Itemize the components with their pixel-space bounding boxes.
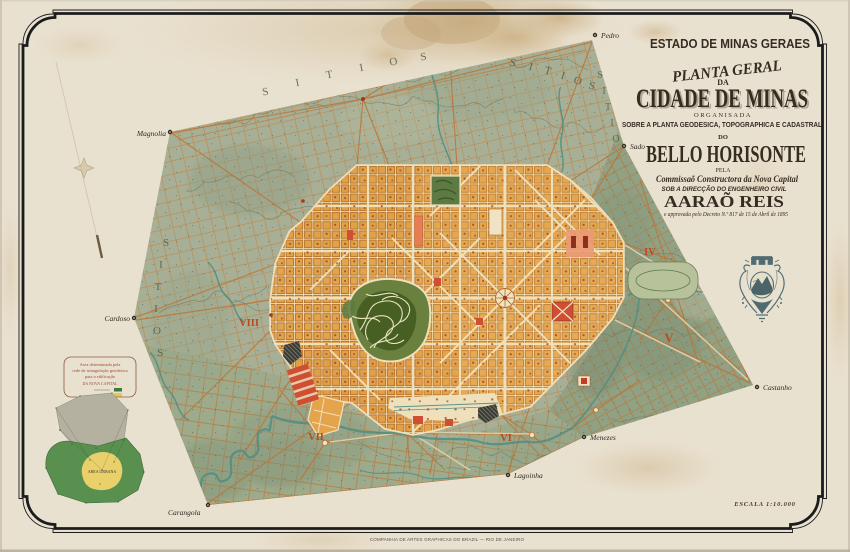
svg-text:VI: VI [500, 433, 512, 444]
svg-text:IV: IV [644, 247, 656, 258]
svg-text:SOBRE A PLANTA GEODESICA, TOPO: SOBRE A PLANTA GEODESICA, TOPOGRAPHICA E… [622, 122, 823, 129]
svg-text:S: S [163, 237, 169, 249]
svg-text:Magnolia: Magnolia [136, 129, 166, 138]
svg-text:Carangola: Carangola [168, 508, 201, 517]
svg-text:rede de triangulação geodesica: rede de triangulação geodesica [72, 368, 127, 373]
svg-text:S: S [597, 70, 603, 81]
svg-text:T: T [605, 102, 611, 113]
svg-text:Commissaõ Constructora da Nova: Commissaõ Constructora da Nova Capital [656, 175, 798, 185]
svg-text:Pedro: Pedro [600, 31, 619, 40]
svg-text:para a edificação: para a edificação [85, 374, 116, 379]
svg-text:ESCALA 1:10.000: ESCALA 1:10.000 [733, 501, 795, 508]
svg-text:Sado: Sado [630, 142, 645, 151]
svg-text:e approvada pelo Decreto N.º 8: e approvada pelo Decreto N.º 817 de 15 d… [664, 212, 788, 218]
svg-text:Menezes: Menezes [589, 433, 616, 442]
svg-text:AARAÕ REIS: AARAÕ REIS [664, 191, 784, 211]
svg-text:O: O [153, 325, 161, 337]
svg-text:PELA: PELA [716, 168, 732, 174]
svg-text:COMPANHIA DE ARTES GRAPHICAS D: COMPANHIA DE ARTES GRAPHICAS DO BRAZIL —… [370, 537, 525, 542]
svg-text:I: I [610, 118, 613, 129]
svg-text:I: I [159, 259, 163, 271]
svg-text:ESTADO DE MINAS GERAES: ESTADO DE MINAS GERAES [650, 37, 810, 51]
svg-text:O: O [612, 134, 619, 145]
svg-text:DA NOVA CAPITAL: DA NOVA CAPITAL [83, 381, 119, 386]
svg-text:S: S [157, 347, 163, 359]
svg-text:V: V [664, 331, 673, 345]
svg-text:VII: VII [308, 432, 324, 443]
svg-text:Lagoinha: Lagoinha [513, 471, 543, 480]
svg-text:I: I [602, 86, 605, 97]
svg-text:Cardoso: Cardoso [104, 314, 130, 323]
svg-text:Area determinada pela: Area determinada pela [80, 362, 121, 367]
svg-text:CIDADE DE MINAS: CIDADE DE MINAS [636, 84, 808, 113]
svg-text:ORGANISADA: ORGANISADA [694, 112, 752, 119]
svg-text:DO: DO [718, 134, 728, 141]
svg-text:BELLO HORISONTE: BELLO HORISONTE [646, 142, 806, 168]
svg-text:VIII: VIII [239, 318, 259, 329]
svg-text:T: T [155, 281, 162, 293]
svg-text:I: I [154, 303, 158, 315]
svg-text:Castanho: Castanho [763, 383, 792, 392]
